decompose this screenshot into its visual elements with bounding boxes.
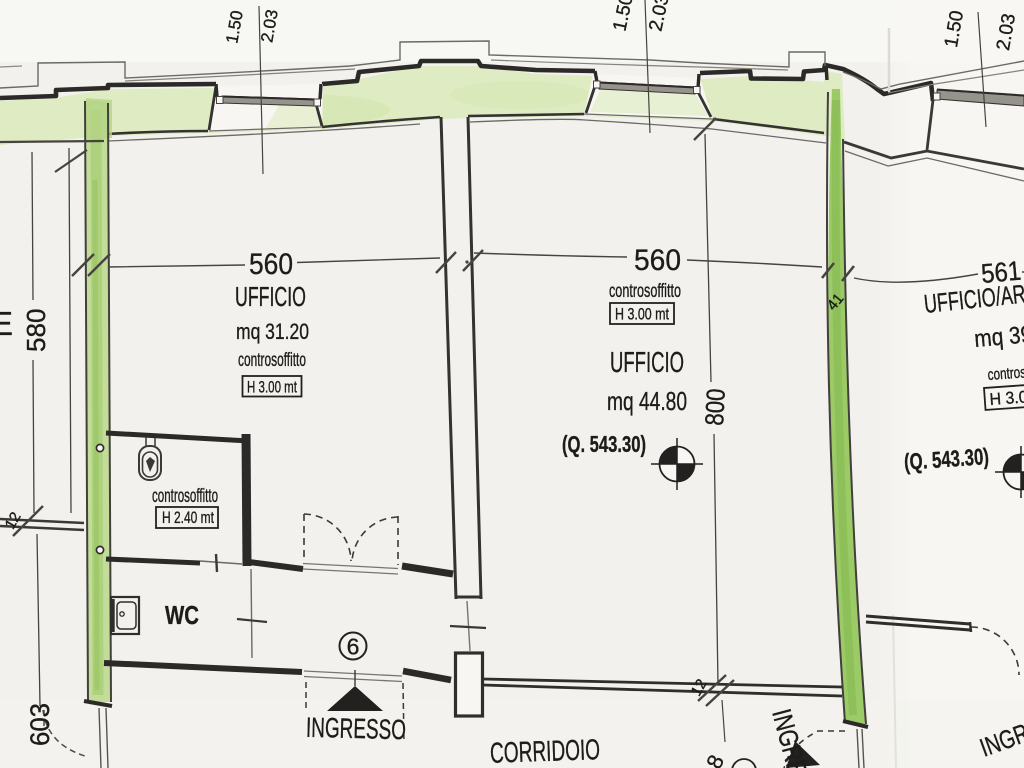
svg-text:mq 31.20: mq 31.20 <box>236 319 309 344</box>
svg-text:603: 603 <box>25 703 55 746</box>
svg-text:mq 44.80: mq 44.80 <box>607 386 687 416</box>
svg-text:WC: WC <box>165 600 199 630</box>
svg-text:6: 6 <box>347 634 360 660</box>
svg-text:560: 560 <box>634 244 681 277</box>
svg-text:H 2.40 mt: H 2.40 mt <box>162 508 214 527</box>
svg-text:H 3.00 mt: H 3.00 mt <box>247 378 297 397</box>
svg-text:(Q. 543.30): (Q. 543.30) <box>562 431 646 457</box>
svg-text:mq 39: mq 39 <box>973 321 1024 353</box>
svg-text:controsoffitto: controsoffitto <box>152 486 218 507</box>
svg-text:controso: controso <box>987 364 1024 384</box>
svg-text:560: 560 <box>249 248 293 281</box>
svg-text:580: 580 <box>21 309 51 353</box>
svg-text:CORRIDOIO: CORRIDOIO <box>490 734 601 768</box>
svg-text:H 3.0: H 3.0 <box>989 387 1024 409</box>
svg-text:INGRESSO: INGRESSO <box>306 712 407 746</box>
svg-text:controsoffitto: controsoffitto <box>609 281 681 302</box>
svg-text:H 3.00 mt: H 3.00 mt <box>615 305 669 324</box>
svg-text:UFFICIO: UFFICIO <box>610 347 684 379</box>
svg-text:UFFICIO: UFFICIO <box>235 281 306 312</box>
svg-text:controsoffitto: controsoffitto <box>238 350 306 371</box>
svg-text:800: 800 <box>699 388 731 427</box>
svg-text:E: E <box>0 305 13 342</box>
